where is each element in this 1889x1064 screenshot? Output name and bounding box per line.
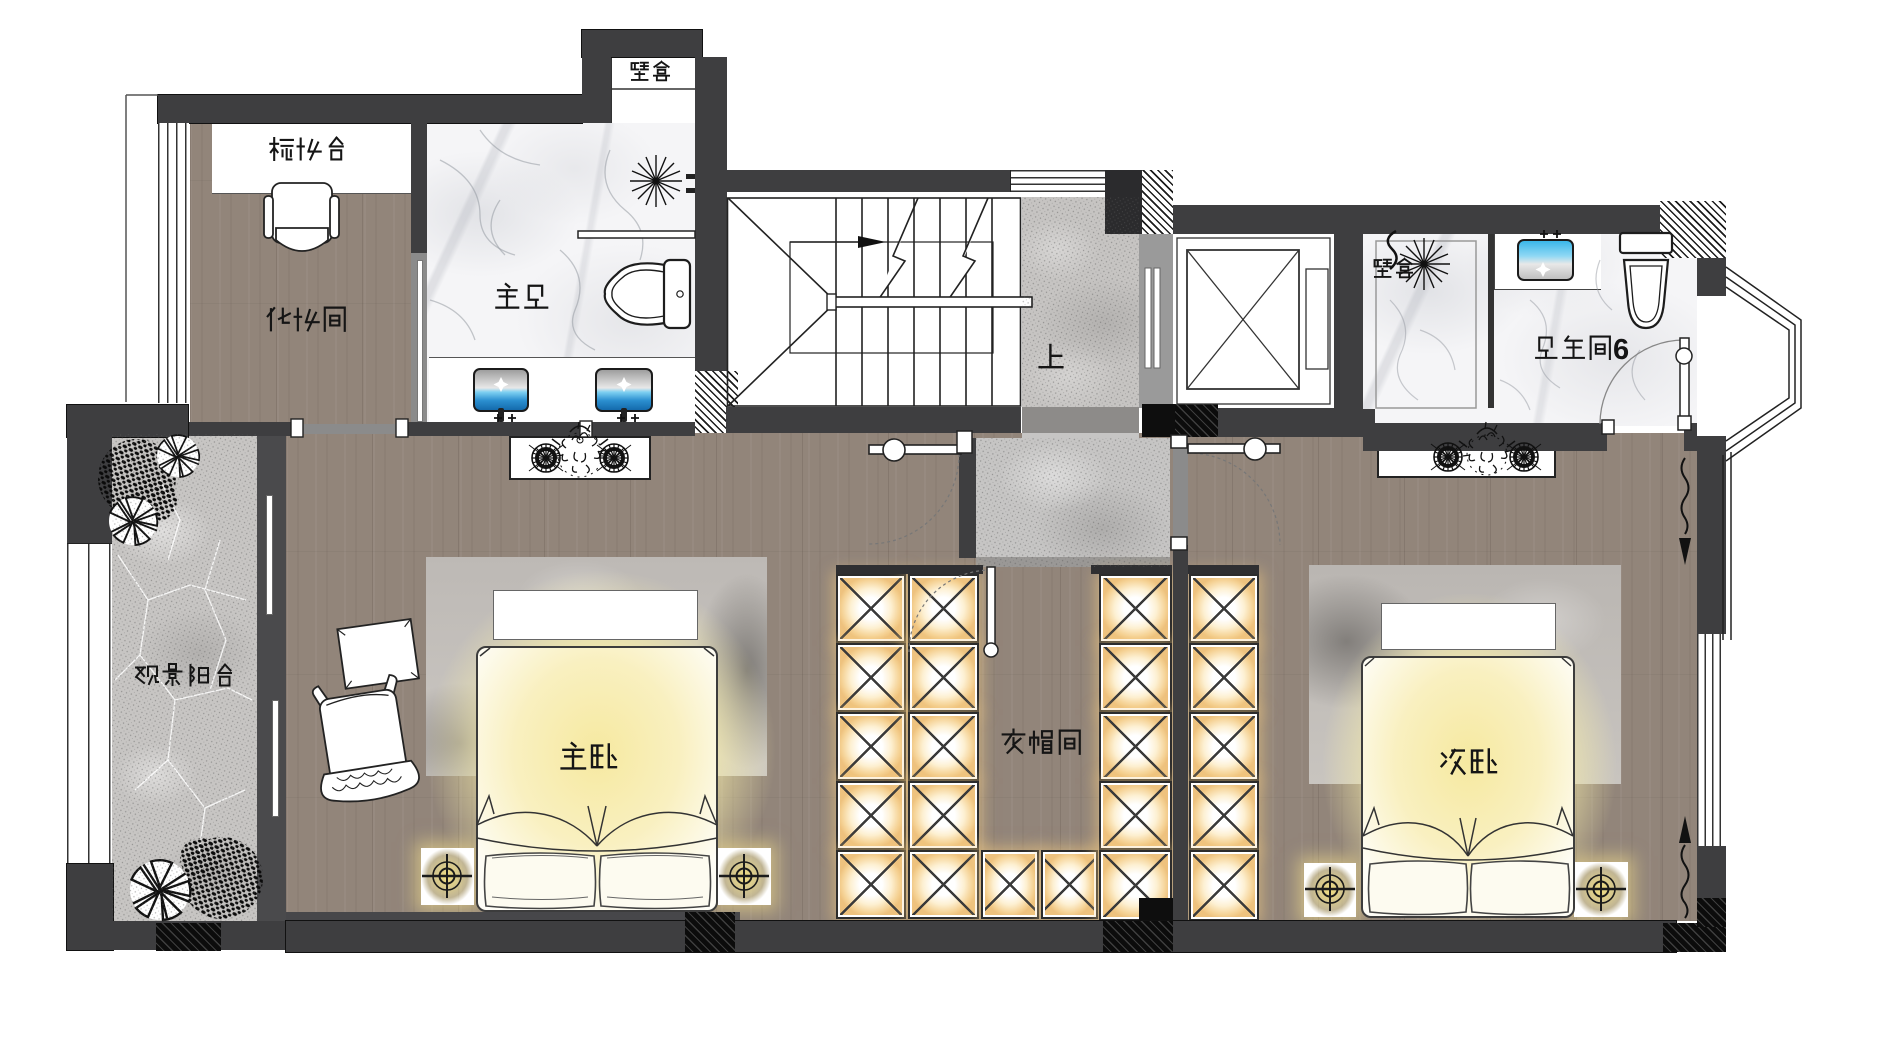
svg-text:6: 6 (1613, 334, 1629, 366)
